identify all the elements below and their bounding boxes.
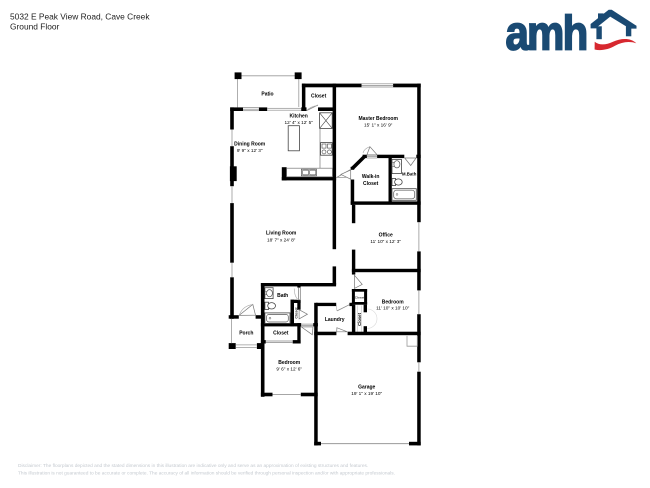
svg-text:Bath: Bath bbox=[277, 293, 288, 299]
svg-text:Closet: Closet bbox=[295, 307, 299, 319]
svg-text:amh: amh bbox=[506, 6, 587, 60]
svg-text:9' 9" x 12' 3": 9' 9" x 12' 3" bbox=[237, 148, 263, 153]
svg-text:Dining Room: Dining Room bbox=[234, 142, 266, 148]
svg-text:Living Room: Living Room bbox=[266, 231, 297, 237]
svg-text:Closet: Closet bbox=[363, 181, 379, 187]
svg-text:Closet: Closet bbox=[357, 312, 362, 325]
svg-text:Disclaimer: The floorplans dep: Disclaimer: The floorplans depicted and … bbox=[18, 463, 368, 469]
svg-text:M.Bath: M.Bath bbox=[402, 172, 417, 177]
svg-text:Walk-in: Walk-in bbox=[362, 174, 380, 180]
svg-text:11' 10" x 12' 3": 11' 10" x 12' 3" bbox=[370, 239, 401, 244]
svg-text:9' 6" x 12' 6": 9' 6" x 12' 6" bbox=[276, 366, 302, 371]
svg-text:Porch: Porch bbox=[239, 331, 253, 337]
svg-text:12' 4" x 12' 5": 12' 4" x 12' 5" bbox=[285, 120, 314, 125]
svg-text:18' 7" x 24' 8": 18' 7" x 24' 8" bbox=[267, 237, 296, 242]
svg-text:15' 1" x 16' 9": 15' 1" x 16' 9" bbox=[364, 123, 393, 128]
svg-text:11' 10" x 10' 10": 11' 10" x 10' 10" bbox=[376, 306, 410, 311]
svg-text:Closet: Closet bbox=[311, 93, 327, 99]
svg-text:19' 1" x 19' 10": 19' 1" x 19' 10" bbox=[351, 391, 382, 396]
svg-text:Office: Office bbox=[379, 232, 393, 238]
svg-text:Laundry: Laundry bbox=[325, 317, 345, 323]
svg-text:Kitchen: Kitchen bbox=[290, 113, 308, 119]
svg-text:Closet: Closet bbox=[355, 295, 364, 299]
svg-text:This illustration is not guara: This illustration is not guaranteed to b… bbox=[18, 471, 395, 477]
svg-text:Closet: Closet bbox=[273, 331, 289, 337]
svg-text:Garage: Garage bbox=[358, 385, 375, 391]
svg-text:Patio: Patio bbox=[261, 92, 273, 98]
svg-text:Master Bedroom: Master Bedroom bbox=[358, 116, 398, 122]
svg-text:5032 E Peak View Road, Cave Cr: 5032 E Peak View Road, Cave Creek bbox=[10, 11, 150, 21]
svg-text:Bedroom: Bedroom bbox=[278, 360, 301, 366]
svg-text:Ground Floor: Ground Floor bbox=[10, 22, 60, 32]
